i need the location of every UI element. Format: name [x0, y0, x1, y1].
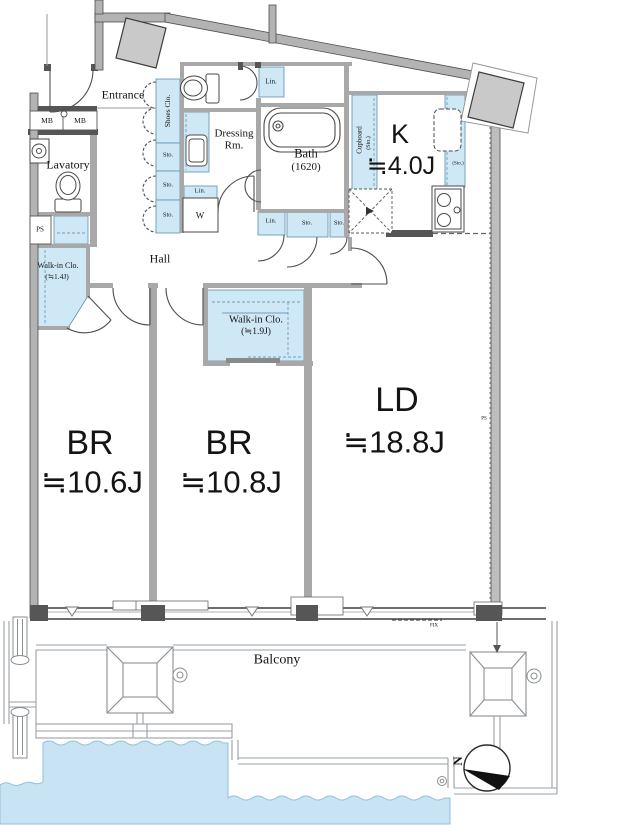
label-linen-hall: Lin.	[266, 219, 277, 226]
balcony-skylight-right	[470, 652, 526, 716]
label-cupboard-sub: (Sto.)	[366, 136, 372, 150]
label-linen-top: Lin.	[265, 78, 276, 85]
label-dressing: Dressing Rm.	[209, 128, 259, 151]
label-storage-3: Sto.	[163, 213, 173, 220]
label-living: LD	[375, 383, 418, 419]
floorplan-drawing	[0, 0, 635, 835]
label-living-size: ≒18.8J	[343, 427, 445, 460]
label-linen-dressing: Lin.	[195, 189, 206, 196]
label-kitchen-size: ≒4.0J	[367, 153, 435, 179]
compass-icon	[463, 745, 510, 791]
wc-toilet	[181, 74, 220, 103]
balcony-skylight-left	[107, 647, 173, 713]
label-bedroom2: BR	[205, 426, 252, 462]
label-shoes-closet: Shoes Clo.	[164, 95, 172, 128]
label-bedroom2-size: ≒10.8J	[180, 467, 282, 500]
label-bath-size: (1620)	[291, 162, 320, 174]
label-walkin-small: Walk-in Clo.	[37, 262, 78, 270]
label-walkin-small-size: (≒1.4J)	[45, 273, 69, 281]
label-hall: Hall	[150, 253, 171, 266]
label-entrance: Entrance	[102, 89, 145, 102]
label-meter-box-1: MB	[41, 117, 53, 125]
kitchen-hatch-unit	[349, 189, 392, 233]
label-walkin-large: Walk-in Clo.	[229, 314, 283, 325]
label-storage-1: Sto.	[163, 153, 173, 160]
label-fridge-space: (Sto.)	[452, 161, 463, 166]
label-bedroom1-size: ≒10.6J	[41, 467, 143, 500]
label-storage-hall-2: Sto.	[334, 221, 344, 228]
label-cupboard: Cupboard	[356, 126, 363, 154]
pool-water	[0, 741, 450, 824]
label-kitchen: K	[391, 120, 409, 148]
flow-arrow	[493, 622, 501, 653]
label-compass-north: N	[451, 756, 465, 765]
label-lavatory: Lavatory	[46, 159, 89, 172]
bathtub	[264, 108, 340, 152]
label-storage-2: Sto.	[163, 183, 173, 190]
window-band	[30, 597, 546, 621]
label-fixed-window: FIX	[430, 623, 438, 628]
label-meter-box-2: MB	[74, 117, 86, 125]
label-storage-hall-1: Sto.	[302, 221, 312, 228]
label-bedroom1: BR	[66, 426, 113, 462]
label-washer: W	[196, 211, 205, 220]
label-walkin-large-size: (≒1.9J)	[241, 328, 271, 338]
floorplan-page: Entrance MB MB Lavatory PS Walk-in Clo. …	[0, 0, 635, 835]
label-balcony: Balcony	[254, 654, 301, 669]
label-bath: Bath	[294, 147, 318, 160]
dressing-vanity-sink	[186, 135, 207, 166]
label-pipe-space-right: PS	[481, 416, 487, 421]
label-pipe-space-left: PS	[36, 226, 44, 233]
drain-pipes	[11, 617, 29, 758]
